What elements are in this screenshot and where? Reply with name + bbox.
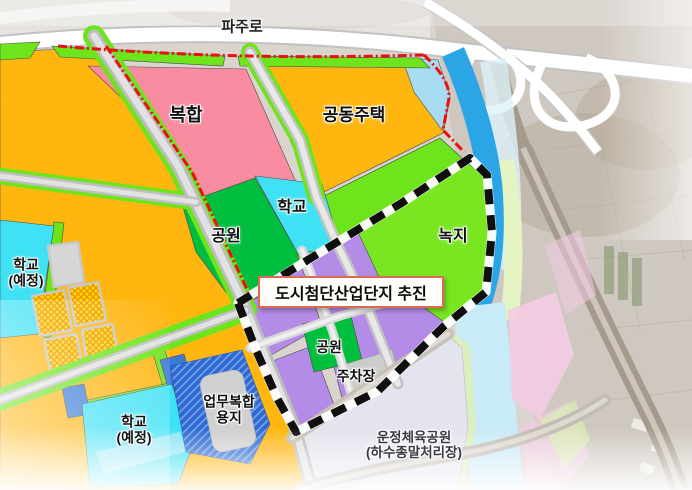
- landuse-map: 파주로 복합 공동주택 학교 공원 녹지 학교 (예정) 도시첨단산업단지 추진…: [0, 0, 692, 490]
- callout-industrial-complex: 도시첨단산업단지 추진: [258, 276, 444, 308]
- map-canvas: [0, 0, 692, 490]
- callout-text: 도시첨단산업단지 추진: [275, 280, 427, 304]
- pale-green-strip: [505, 160, 514, 320]
